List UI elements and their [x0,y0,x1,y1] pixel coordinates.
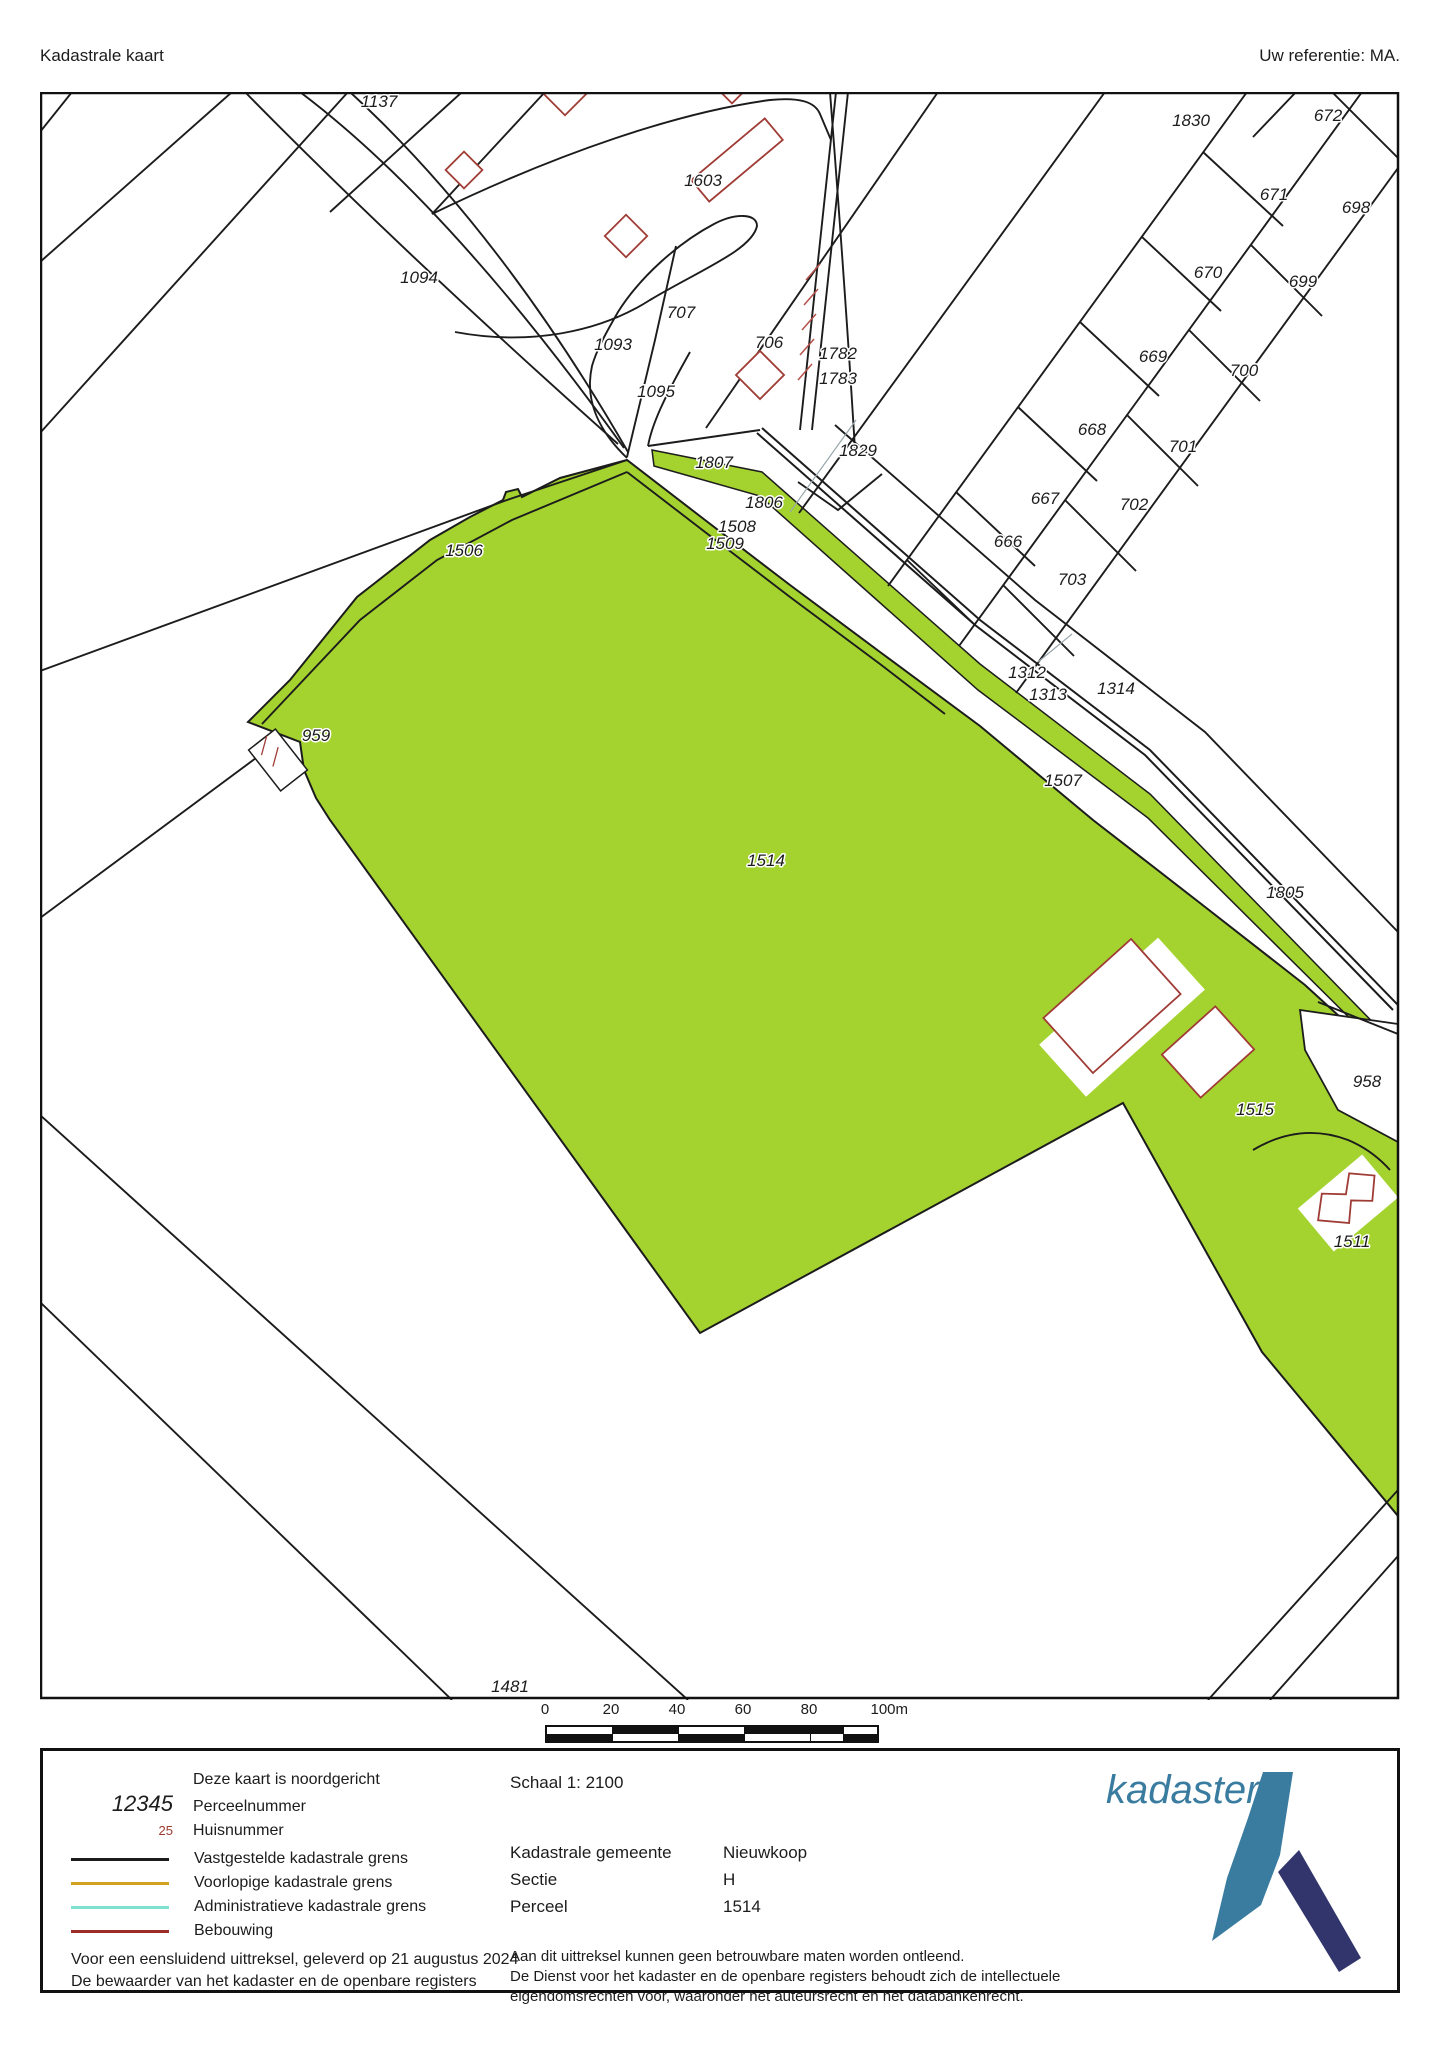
kadaster-logo: kadaster [1098,1755,1398,1990]
parcel-label-701: 701 [1169,437,1197,456]
parcel-label-1603: 1603 [684,171,722,190]
parcel-label-669: 669 [1139,347,1168,366]
kadaster-logo-text: kadaster [1106,1768,1261,1812]
reference-label: Uw referentie: MA. [1259,46,1400,66]
parcel-label-670: 670 [1194,263,1223,282]
scale-tick: 20 [603,1701,620,1718]
kadaster-logo-blade [1278,1850,1361,1972]
info-row: Perceel1514 [510,1893,807,1920]
parcel-number-sample: 12345 [83,1791,173,1817]
parcel-label-959: 959 [302,726,331,745]
parcel-label-1783: 1783 [819,369,857,388]
cadastral-extract-page: Kadastrale kaart Uw referentie: MA. [0,0,1447,2048]
parcel-label-671: 671 [1260,185,1288,204]
info-row-label: Kadastrale gemeente [510,1839,723,1866]
disclaimer-line: eigendomsrechten voor, waaronder het aut… [510,1987,1060,2007]
parcel-label-666: 666 [994,532,1023,551]
parcel-label-1481: 1481 [491,1677,529,1696]
parcel-label-1506: 1506 [445,541,483,560]
parcel-label-1507: 1507 [1044,771,1082,790]
parcel-label-698: 698 [1342,198,1371,217]
parcel-label-1806: 1806 [745,493,783,512]
parcel-label-1805: 1805 [1266,883,1304,902]
info-row: SectieH [510,1866,807,1893]
parcel-info: Kadastrale gemeenteNieuwkoopSectieHPerce… [510,1839,807,1920]
delivery-note: Voor een eensluidend uittreksel, gelever… [71,1949,518,1993]
legend-line-swatch [71,1882,169,1885]
parcel-label-1514: 1514 [747,851,785,870]
scale-tick: 60 [735,1701,752,1718]
scale-label: Schaal 1: 2100 [510,1773,623,1793]
legend-line-swatch [71,1906,169,1909]
info-row: Kadastrale gemeenteNieuwkoop [510,1839,807,1866]
scale-tick: 40 [669,1701,686,1718]
scale-tick: 0 [541,1701,549,1718]
parcel-label-699: 699 [1289,272,1318,291]
delivery-note-line: Voor een eensluidend uittreksel, gelever… [71,1949,518,1971]
legend-line-swatch [71,1858,169,1861]
scale-tick: 100m [870,1701,908,1718]
north-note: Deze kaart is noordgericht [193,1771,380,1789]
parcel-label-667: 667 [1031,489,1060,508]
parcel-label-1829: 1829 [839,441,877,460]
page-title: Kadastrale kaart [40,46,164,66]
parcel-label-703: 703 [1058,570,1087,589]
parcel-label-958: 958 [1353,1072,1382,1091]
legend-row: Voorlopige kadastrale grens [71,1871,426,1895]
parcel-label-1515: 1515 [1236,1100,1274,1119]
info-row-label: Sectie [510,1866,723,1893]
disclaimer-line: De Dienst voor het kadaster en de openba… [510,1967,1060,1987]
parcel-label-1312: 1312 [1008,663,1046,682]
parcel-label-1094: 1094 [400,268,438,287]
house-number-label: Huisnummer [193,1822,284,1840]
info-row-value: H [723,1866,735,1893]
parcel-label-700: 700 [1230,361,1259,380]
parcel-label-1782: 1782 [819,344,857,363]
parcel-label-672: 672 [1314,106,1343,125]
parcel-label-1313: 1313 [1029,685,1067,704]
parcel-label-668: 668 [1078,420,1107,439]
parcel-label-1509: 1509 [706,534,744,553]
scale-bar: 020406080100m [545,1701,885,1745]
legend-label: Voorlopige kadastrale grens [194,1874,392,1892]
scale-tick: 80 [801,1701,818,1718]
legend-label: Administratieve kadastrale grens [194,1898,426,1916]
delivery-note-line: De bewaarder van het kadaster en de open… [71,1971,518,1993]
parcel-label-1137: 1137 [361,92,398,111]
parcel-label-702: 702 [1120,495,1149,514]
legend-label: Bebouwing [194,1922,273,1940]
legend-row: Administratieve kadastrale grens [71,1895,426,1919]
cadastral-map: 1137160318306726716986706991094707706178… [40,92,1400,1700]
parcel-label-707: 707 [667,303,696,322]
legend-row: Bebouwing [71,1919,426,1943]
legend: Vastgestelde kadastrale grensVoorlopige … [71,1847,426,1943]
disclaimer-line: Aan dit uittreksel kunnen geen betrouwba… [510,1947,1060,1967]
info-row-value: 1514 [723,1893,761,1920]
house-number-sample: 25 [83,1823,173,1838]
scale-tick-labels: 020406080100m [545,1701,885,1719]
parcel-label-1511: 1511 [1334,1232,1371,1251]
legend-label: Vastgestelde kadastrale grens [194,1850,408,1868]
legend-line-swatch [71,1930,169,1933]
parcel-label-1095: 1095 [637,382,675,401]
parcel-number-label: Perceelnummer [193,1798,306,1816]
parcel-label-1093: 1093 [594,335,632,354]
scale-bar-graphic [545,1725,879,1743]
parcel-label-1830: 1830 [1172,111,1210,130]
parcel-label-1807: 1807 [695,453,733,472]
parcel-label-1314: 1314 [1097,679,1135,698]
parcel-label-706: 706 [755,333,784,352]
disclaimer: Aan dit uittreksel kunnen geen betrouwba… [510,1947,1060,2007]
info-row-value: Nieuwkoop [723,1839,807,1866]
info-box: Deze kaart is noordgericht 12345 Perceel… [40,1748,1400,1993]
legend-row: Vastgestelde kadastrale grens [71,1847,426,1871]
info-row-label: Perceel [510,1893,723,1920]
